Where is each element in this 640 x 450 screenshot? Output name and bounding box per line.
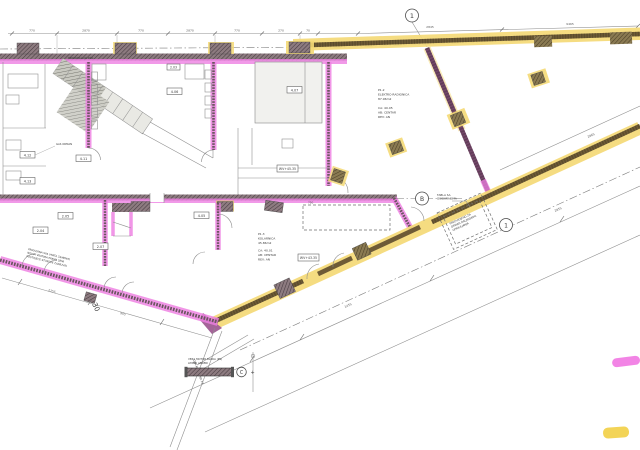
svg-text:1: 1 bbox=[410, 12, 414, 20]
section-detail: OSA KOLOSEKA 23 VEZA MOTOR BLOKA (PS) LI… bbox=[170, 328, 255, 450]
dim-top-1: 770 bbox=[29, 29, 35, 33]
room-box-203: 2.03 bbox=[170, 66, 177, 70]
dim-top-right-1: 2845 bbox=[426, 25, 434, 29]
room-box-406: 4.06 bbox=[171, 90, 179, 94]
svg-text:LIMENI ANKERI: LIMENI ANKERI bbox=[188, 361, 208, 365]
level-box-lower: WV+43.35 bbox=[300, 256, 317, 260]
dim-diag-1: 2855 bbox=[554, 206, 563, 213]
svg-text:AB: CENTAR: AB: CENTAR bbox=[378, 111, 396, 115]
diagonal-yellow-wall bbox=[200, 122, 640, 334]
dim-diag-above: 2865 bbox=[587, 132, 596, 139]
svg-text:REV: AN: REV: AN bbox=[258, 258, 270, 262]
dim-top-4: 2870 bbox=[186, 29, 194, 33]
misc-left-label: GAS ORMAN bbox=[56, 142, 72, 146]
room-box-411: 4.11 bbox=[80, 157, 88, 161]
top-yellow-wall bbox=[293, 28, 640, 52]
svg-text:CA: 40.01: CA: 40.01 bbox=[258, 249, 273, 253]
room-p12-label: P1.2 ELEKTRO RADIONICA 87.96m2 CA: 40.05… bbox=[378, 88, 410, 119]
svg-text:OSIGURACIMA: OSIGURACIMA bbox=[437, 197, 457, 201]
dim-diag-2: 1455 bbox=[344, 302, 353, 309]
highlighter-mark-pink bbox=[612, 355, 640, 367]
grid-marker-1-diagonal: 1 bbox=[504, 222, 508, 229]
room-box-207: 2.07 bbox=[97, 245, 105, 249]
dim-top-7: 70 bbox=[306, 29, 310, 33]
room-box-405: 4.05 bbox=[198, 214, 206, 218]
svg-text:P1.2: P1.2 bbox=[378, 88, 385, 92]
purple-diagonal-wall bbox=[427, 48, 492, 200]
upper-middle-rooms: 4.06 4.07 2.03 WV+45.35 bbox=[89, 62, 350, 195]
room-box-412: 4.12 bbox=[24, 154, 32, 158]
highlighter-marks bbox=[603, 355, 640, 439]
lower-left-magenta-wall: PRIKAZANA SVA VRATA ZAMENITI NOVIM VRATI… bbox=[0, 247, 218, 338]
dim-top-6: 270 bbox=[278, 29, 284, 33]
handwritten-note: 30 bbox=[90, 301, 101, 312]
room-box-204: 2.04 bbox=[37, 229, 45, 233]
svg-text:CA: 40.05: CA: 40.05 bbox=[378, 106, 393, 110]
dim-top-2: 2870 bbox=[82, 29, 90, 33]
dim-top-3: 770 bbox=[138, 29, 144, 33]
room-box-205: 2.05 bbox=[62, 215, 70, 219]
dim-top-5: 770 bbox=[234, 29, 240, 33]
room-box-413: 4.13 bbox=[24, 180, 32, 184]
svg-text:ELEKTRO RADIONICA: ELEKTRO RADIONICA bbox=[378, 93, 410, 97]
upper-left-rooms: 4.12 4.13 4.11 GAS ORMAN bbox=[3, 59, 213, 196]
svg-text:KOLARNICA: KOLARNICA bbox=[258, 237, 276, 241]
svg-text:B: B bbox=[420, 196, 424, 203]
svg-text:P1.3: P1.3 bbox=[258, 232, 265, 236]
highlighter-mark-yellow bbox=[603, 426, 630, 439]
svg-text:AB: CENTAR: AB: CENTAR bbox=[258, 253, 276, 257]
floor-plan-sheet: 770 2870 770 2870 770 270 70 2845 9465 1… bbox=[0, 0, 640, 450]
dim-bottom-1: 2155 bbox=[48, 288, 57, 294]
middle-magenta-wall bbox=[0, 193, 411, 229]
rect-dim-label: 750 bbox=[308, 201, 314, 205]
svg-text:87.96m2: 87.96m2 bbox=[378, 97, 392, 101]
dim-top-right-2: 9465 bbox=[566, 22, 574, 26]
floor-plan-canvas: 770 2870 770 2870 770 270 70 2845 9465 1… bbox=[0, 0, 640, 450]
plus-mark: + bbox=[251, 370, 255, 376]
svg-text:REV: AN: REV: AN bbox=[378, 115, 390, 119]
level-box-upper: WV+45.35 bbox=[279, 167, 296, 171]
top-wall-piers bbox=[17, 41, 314, 54]
svg-text:45.86m2: 45.86m2 bbox=[258, 241, 272, 245]
wall-micro-label: HIDROIZOLACIJA ZIDA bbox=[68, 57, 94, 60]
room-box-407: 4.07 bbox=[291, 89, 299, 93]
dim-bottom-2: 905 bbox=[120, 311, 127, 316]
